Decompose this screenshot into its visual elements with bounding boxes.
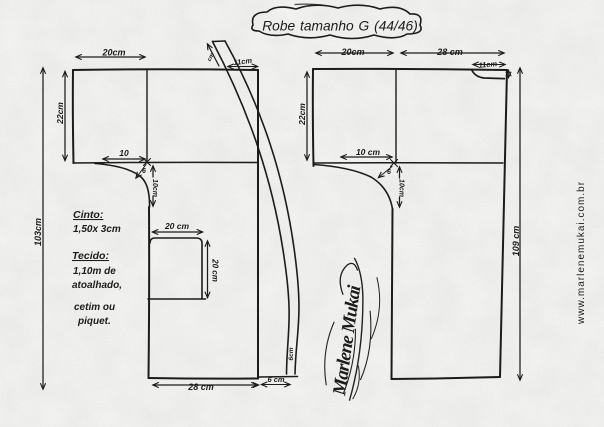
svg-text:10cm: 10cm (151, 179, 158, 197)
svg-text:103cm: 103cm (33, 218, 43, 246)
svg-text:6: 6 (387, 169, 391, 176)
svg-text:6: 6 (142, 168, 146, 175)
svg-text:1,10m de: 1,10m de (73, 266, 116, 277)
svg-text:20cm: 20cm (101, 48, 125, 58)
svg-text:cetim ou: cetim ou (74, 302, 115, 313)
svg-text:28 cm: 28 cm (436, 47, 463, 57)
svg-text:28 cm: 28 cm (187, 382, 214, 392)
svg-text:20 cm: 20 cm (211, 258, 220, 282)
svg-text:20 cm: 20 cm (164, 221, 190, 231)
svg-text:Robe tamanho G (44/46): Robe tamanho G (44/46) (262, 19, 418, 34)
svg-text:10: 10 (119, 148, 129, 158)
svg-text:atoalhado,: atoalhado, (72, 280, 122, 291)
svg-text:piquet.: piquet. (77, 316, 111, 327)
svg-text:www.marlenemukai.com.br: www.marlenemukai.com.br (576, 181, 587, 325)
svg-text:22cm: 22cm (55, 102, 65, 125)
svg-text:20cm: 20cm (340, 47, 364, 57)
svg-text:10cm: 10cm (398, 179, 405, 197)
svg-text:11cm: 11cm (478, 59, 498, 70)
svg-text:Tecido:: Tecido: (72, 250, 109, 262)
svg-text:10 cm: 10 cm (356, 147, 381, 157)
svg-text:6 cm: 6 cm (267, 375, 284, 384)
svg-text:6cm: 6cm (288, 347, 295, 360)
svg-text:109 cm: 109 cm (511, 226, 521, 257)
svg-text:Cinto:: Cinto: (73, 209, 103, 221)
svg-text:22cm: 22cm (297, 103, 307, 126)
svg-text:1,50x 3cm: 1,50x 3cm (73, 224, 121, 235)
